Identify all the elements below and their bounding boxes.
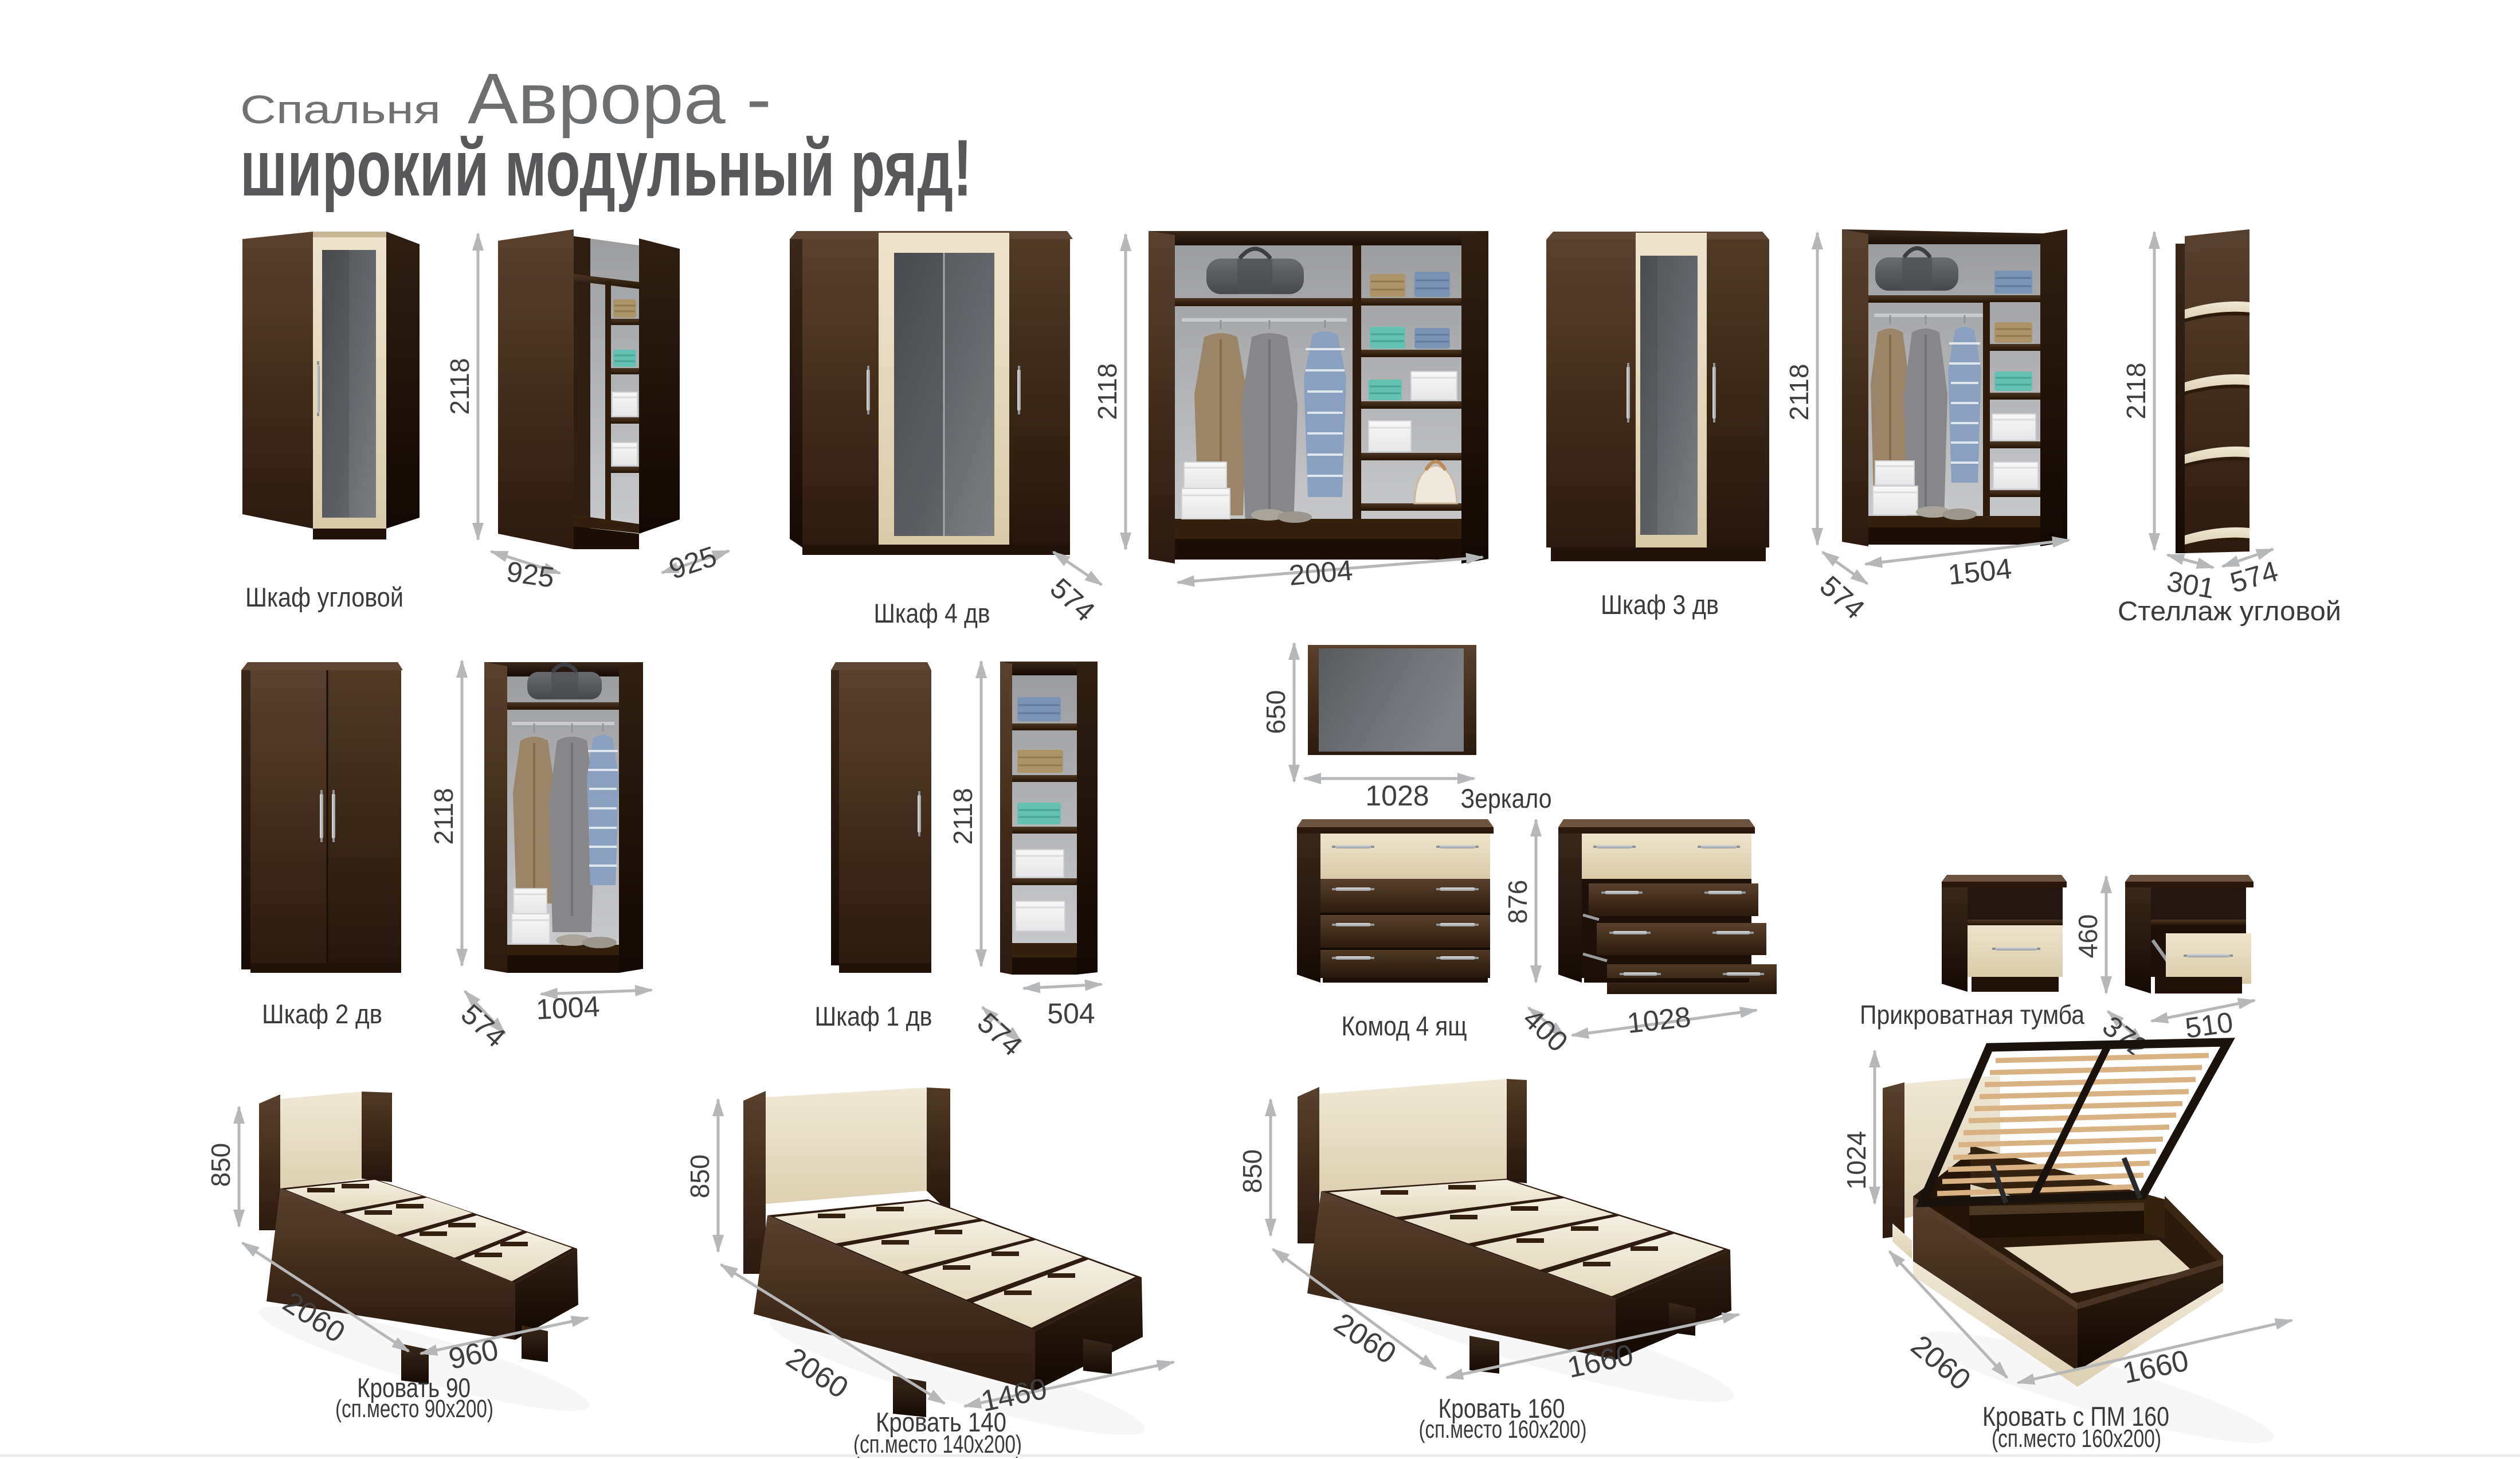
svg-text:2118: 2118 <box>445 358 475 415</box>
svg-text:876: 876 <box>1503 880 1533 924</box>
svg-text:(сп.место 160х200): (сп.место 160х200) <box>1992 1425 2161 1453</box>
svg-text:1504: 1504 <box>1946 553 2013 591</box>
svg-text:1028: 1028 <box>1625 1001 1692 1039</box>
svg-text:2118: 2118 <box>1784 364 1814 421</box>
svg-text:Шкаф 4 дв: Шкаф 4 дв <box>874 598 990 628</box>
svg-text:(сп.место 140х200): (сп.место 140х200) <box>853 1430 1022 1458</box>
svg-text:850: 850 <box>1237 1149 1267 1194</box>
svg-text:Прикроватная тумба: Прикроватная тумба <box>1860 1000 2084 1030</box>
svg-text:1004: 1004 <box>535 990 601 1026</box>
svg-text:650: 650 <box>1261 690 1291 734</box>
svg-text:850: 850 <box>685 1155 715 1199</box>
svg-text:850: 850 <box>206 1143 236 1187</box>
svg-text:1024: 1024 <box>1841 1131 1871 1190</box>
svg-text:1028: 1028 <box>1365 780 1429 812</box>
svg-text:2118: 2118 <box>429 788 458 845</box>
svg-text:504: 504 <box>1047 998 1095 1030</box>
svg-text:Шкаф 3 дв: Шкаф 3 дв <box>1601 589 1719 620</box>
svg-text:(сп.место 90х200): (сп.место 90х200) <box>335 1395 493 1423</box>
svg-text:Комод 4 ящ: Комод 4 ящ <box>1342 1011 1467 1041</box>
svg-text:2118: 2118 <box>2121 363 2151 420</box>
svg-text:925: 925 <box>504 556 556 594</box>
svg-text:460: 460 <box>2073 914 2103 959</box>
svg-text:(сп.место 160х200): (сп.место 160х200) <box>1419 1415 1587 1444</box>
svg-text:Шкаф 1 дв: Шкаф 1 дв <box>815 1001 932 1031</box>
svg-text:Зеркало: Зеркало <box>1461 783 1552 813</box>
svg-text:2004: 2004 <box>1288 554 1354 591</box>
svg-text:2118: 2118 <box>1092 363 1122 420</box>
svg-text:2118: 2118 <box>948 788 978 845</box>
svg-text:Шкаф угловой: Шкаф угловой <box>245 582 403 612</box>
svg-text:широкий модульный ряд!: широкий модульный ряд! <box>240 123 972 213</box>
svg-text:Шкаф 2 дв: Шкаф 2 дв <box>262 999 382 1029</box>
svg-text:Стеллаж угловой: Стеллаж угловой <box>2118 596 2341 626</box>
